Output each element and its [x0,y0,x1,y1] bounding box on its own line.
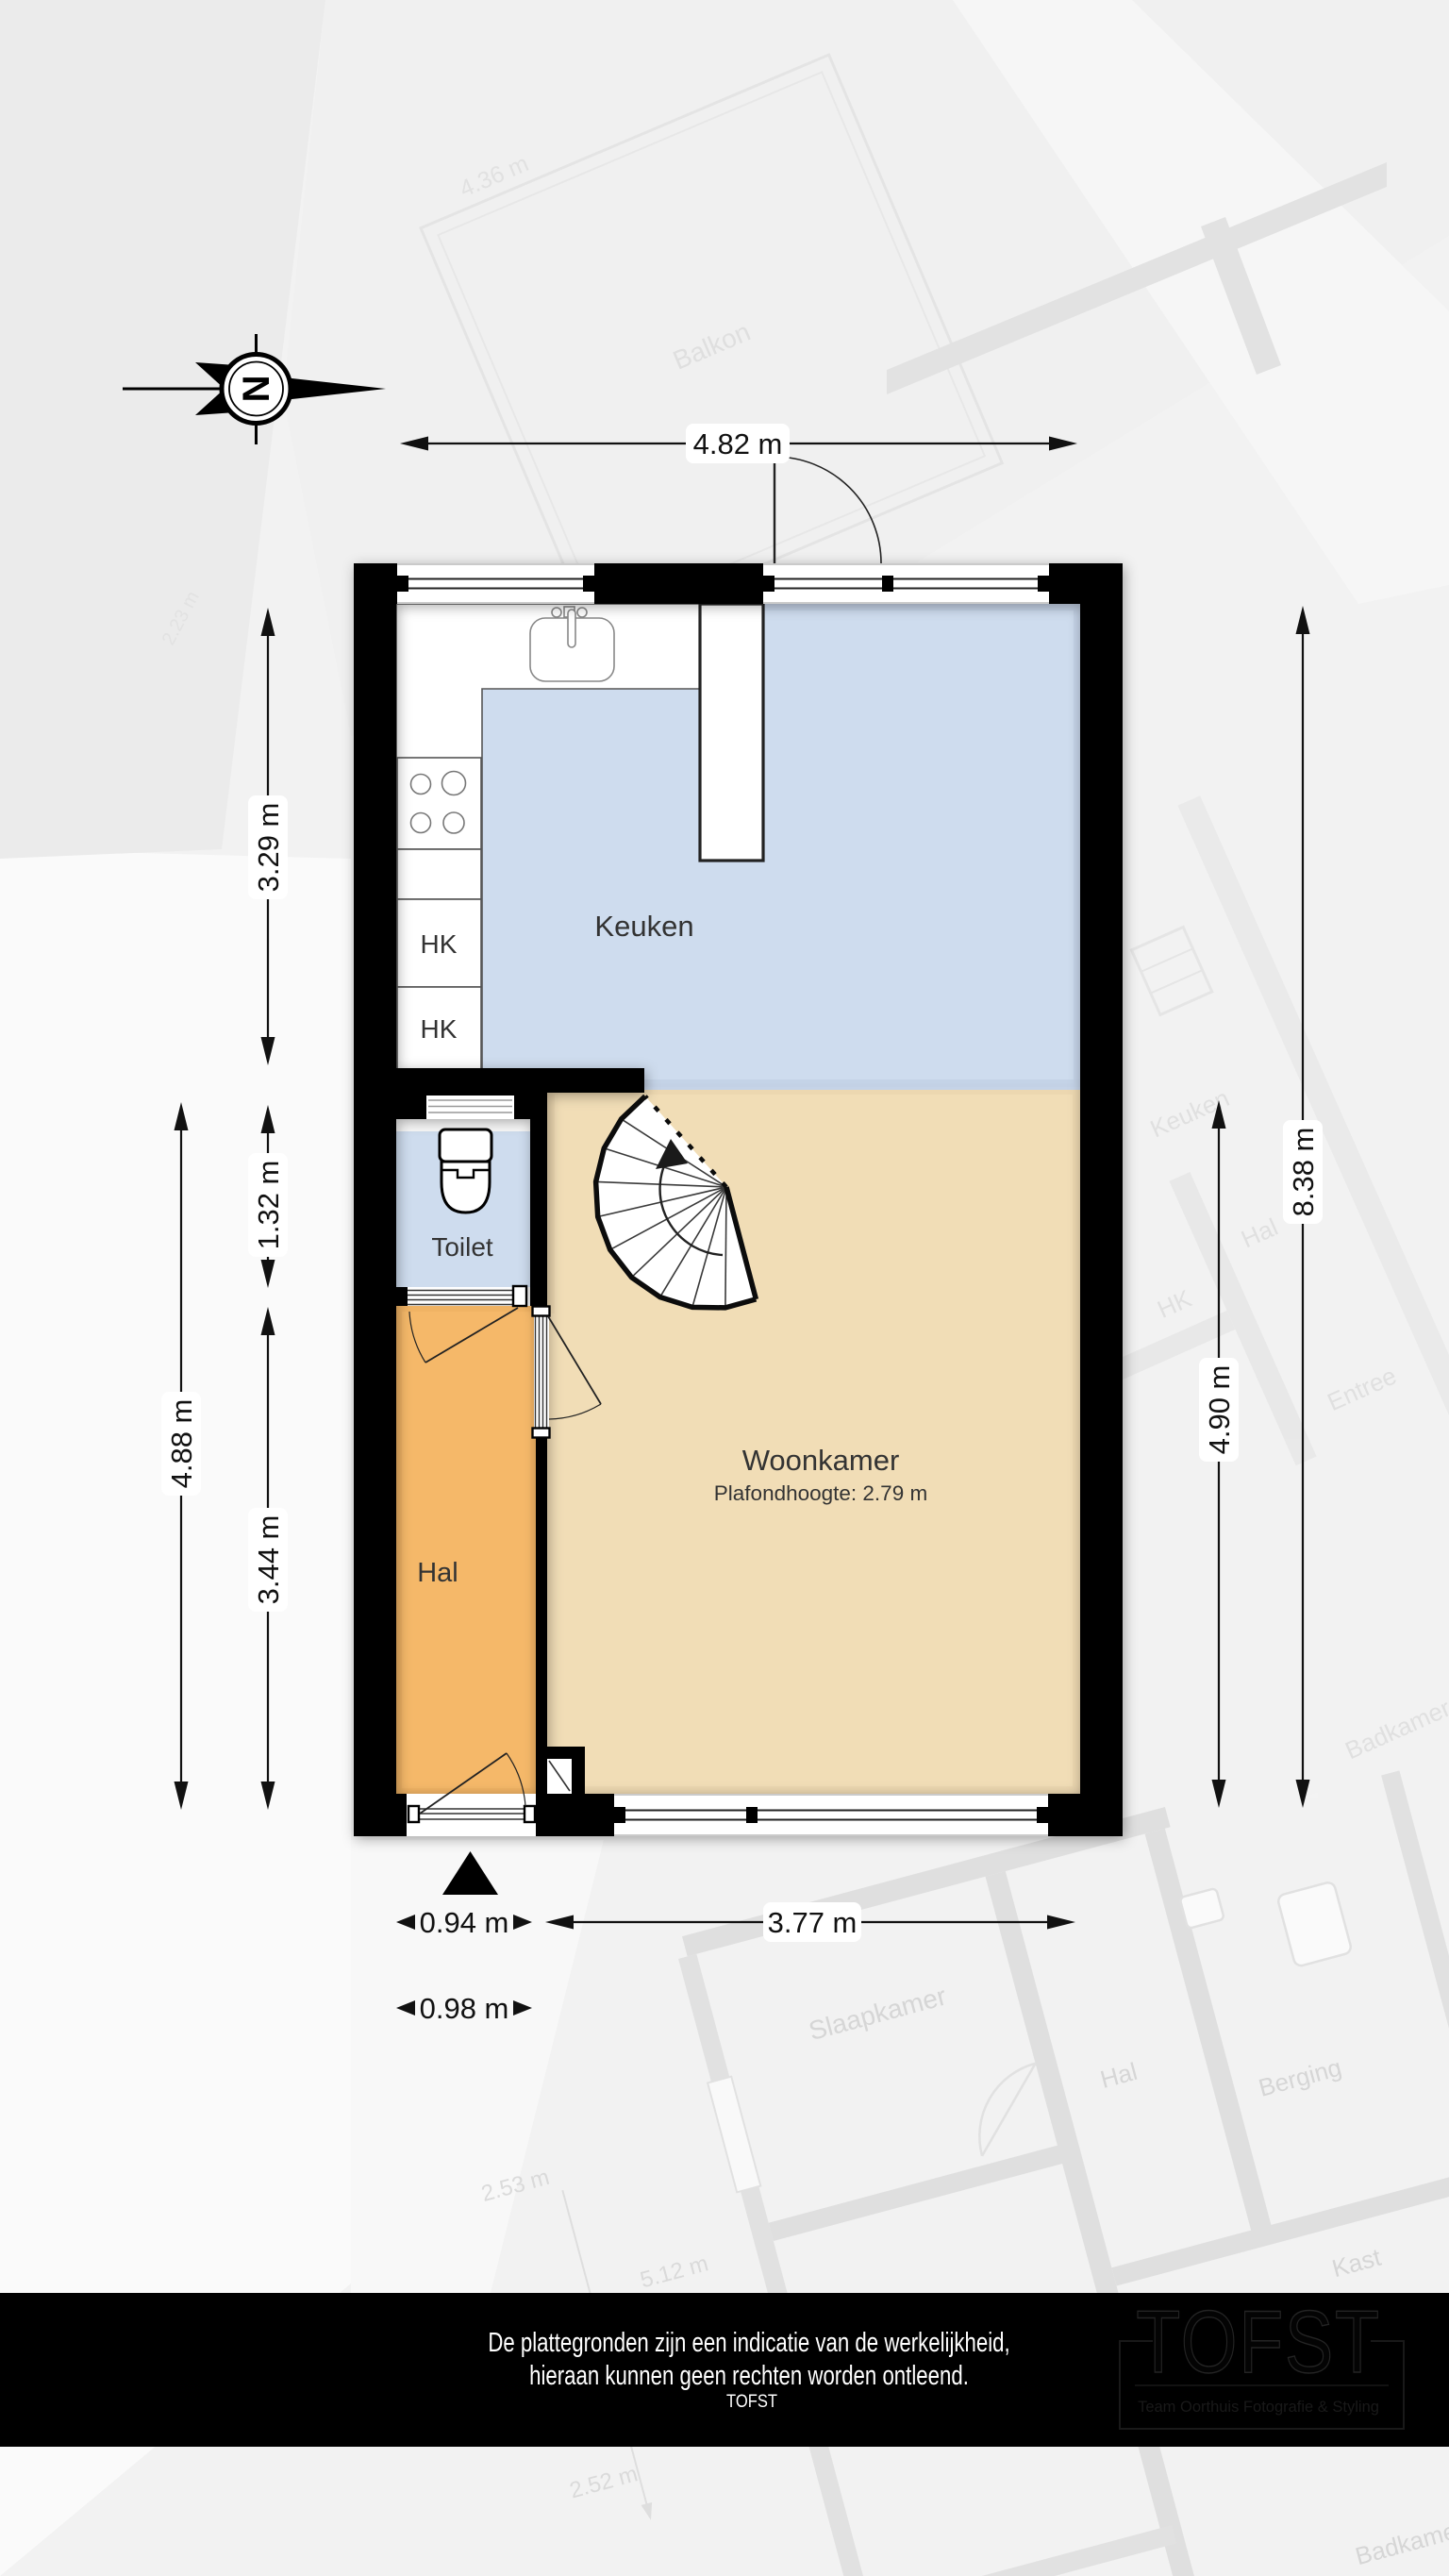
svg-text:HK: HK [421,929,458,959]
svg-text:Keuken: Keuken [594,910,693,943]
svg-text:3.29 m: 3.29 m [252,803,285,893]
svg-text:TOFST: TOFST [1136,2293,1380,2392]
svg-text:hieraan kunnen geen rechten wo: hieraan kunnen geen rechten worden ontle… [529,2361,969,2390]
svg-text:0.94 m: 0.94 m [420,1906,509,1939]
svg-text:8.38 m: 8.38 m [1287,1128,1320,1217]
svg-text:Hal: Hal [417,1558,458,1588]
svg-text:Team Oorthuis Fotografie & Sty: Team Oorthuis Fotografie & Styling [1138,2399,1379,2416]
svg-text:N: N [235,376,276,403]
svg-text:Plafondhoogte: 2.79 m: Plafondhoogte: 2.79 m [714,1481,927,1505]
svg-text:4.82 m: 4.82 m [693,427,783,460]
svg-text:HK: HK [421,1014,458,1044]
svg-text:4.88 m: 4.88 m [165,1399,198,1489]
svg-text:4.90 m: 4.90 m [1203,1365,1236,1455]
svg-text:0.98 m: 0.98 m [420,1992,509,2025]
svg-text:3.77 m: 3.77 m [768,1906,858,1939]
svg-text:1.32 m: 1.32 m [252,1161,285,1250]
svg-text:Toilet: Toilet [431,1232,493,1262]
svg-text:TOFST: TOFST [726,2391,777,2412]
svg-text:De plattegronden zijn een indi: De plattegronden zijn een indicatie van … [488,2328,1009,2357]
svg-text:3.44 m: 3.44 m [252,1515,285,1605]
svg-text:Woonkamer: Woonkamer [742,1444,900,1477]
